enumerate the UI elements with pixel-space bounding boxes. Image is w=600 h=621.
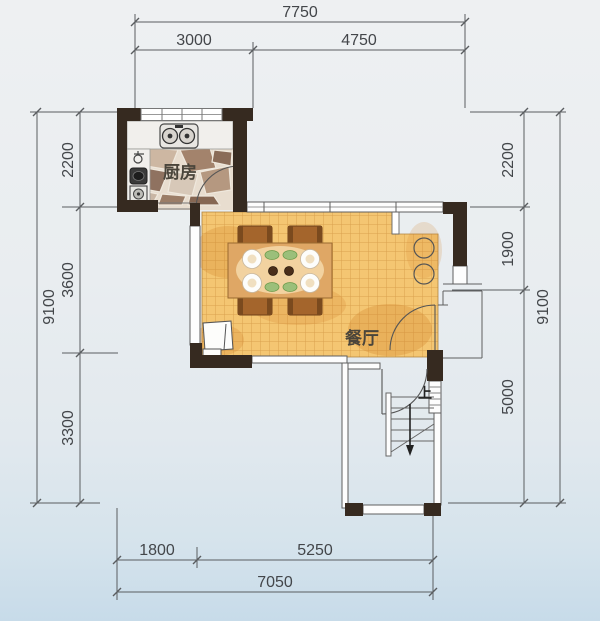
dining-room: 餐厅 xyxy=(192,212,442,363)
washer-icon xyxy=(130,186,147,202)
right-wall-segment xyxy=(453,266,467,284)
dim-bottom-seg1: 1800 xyxy=(139,542,175,559)
dim-right-total: 9100 xyxy=(535,289,552,325)
niche-wall-stub xyxy=(392,212,399,234)
dim-left-seg3: 3300 xyxy=(60,410,77,446)
stove-icon xyxy=(160,124,198,148)
basin-icon xyxy=(130,168,147,184)
dim-top-seg1: 3000 xyxy=(176,32,212,49)
dim-left-total: 9100 xyxy=(41,289,58,325)
floorplan-canvas: 7750 3000 4750 9100 2200 3600 3300 9100 … xyxy=(0,0,600,621)
kitchen-label: 厨房 xyxy=(163,162,197,182)
dim-right-seg2: 1900 xyxy=(500,231,517,267)
dim-bottom-total: 7050 xyxy=(257,574,293,591)
dining-label: 餐厅 xyxy=(345,328,379,348)
floorplan-drawing: 7750 3000 4750 9100 2200 3600 3300 9100 … xyxy=(0,0,600,621)
kitchen-room: 厨房 xyxy=(122,115,239,210)
stairhall-right-wall xyxy=(434,413,441,505)
dining-bottom-wall xyxy=(252,356,347,363)
stairwell: 上 xyxy=(382,369,434,456)
dim-top-total: 7750 xyxy=(282,4,318,21)
stairs-direction-label: 上 xyxy=(418,385,432,401)
stairhall-bottom-wall xyxy=(363,505,424,514)
dim-bottom-seg2: 5250 xyxy=(297,542,333,559)
dim-left-seg1: 2200 xyxy=(60,142,77,178)
stairhall-top-wall xyxy=(348,363,380,369)
dim-right-seg1: 2200 xyxy=(500,142,517,178)
dim-right-seg3: 5000 xyxy=(500,379,517,415)
stairhall-left-wall xyxy=(342,363,348,508)
dining-left-wall xyxy=(190,226,200,345)
dim-top-seg2: 4750 xyxy=(341,32,377,49)
dim-left-seg2: 3600 xyxy=(60,262,77,298)
